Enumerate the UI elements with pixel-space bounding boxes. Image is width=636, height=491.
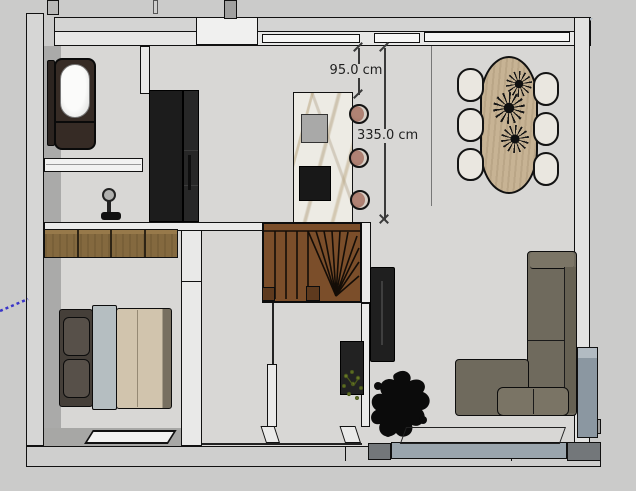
pendant-light-2[interactable] [493, 92, 525, 124]
wardrobe-divider-2 [110, 230, 112, 257]
kitchen-tall-unit-side [183, 90, 199, 222]
terrace-window-slab[interactable] [391, 442, 567, 459]
bed-sheet-fold [92, 305, 117, 410]
island-cooktop[interactable] [299, 166, 331, 201]
bathroom-counter[interactable] [44, 158, 143, 172]
kitchen-unit-seam-2 [184, 185, 198, 186]
bathtub-surround-seam [56, 121, 94, 123]
window-slit-kitchen[interactable] [262, 34, 360, 43]
bar-stool-3[interactable] [350, 190, 370, 210]
wall-stub-top-left [47, 0, 59, 15]
floorplan-viewport: 95.0 cm 335.0 cm [0, 0, 636, 491]
bathtub-side-strip [47, 60, 55, 146]
bed-pillow-2 [63, 359, 90, 398]
top-wall-white-segment [196, 17, 258, 45]
terrace-dark-segment [368, 443, 391, 460]
dim-b-label[interactable]: 335.0 cm [355, 129, 413, 143]
stair-post-left [262, 287, 275, 301]
wardrobe-divider-3 [144, 230, 146, 257]
guide-line-icon [0, 294, 30, 314]
living-rug[interactable] [400, 427, 566, 444]
kitchen-unit-handle [188, 155, 191, 190]
dining-chair-right-1[interactable] [533, 72, 559, 106]
wall-stub-line [153, 0, 158, 14]
pendant-light-3[interactable] [501, 125, 529, 153]
window-slit-dining-left[interactable] [374, 33, 420, 43]
tv-soundbar-line [381, 281, 383, 345]
understairs-wall-line [272, 303, 274, 364]
bar-stool-1[interactable] [349, 104, 369, 124]
blue-gray-cabinet[interactable] [577, 347, 598, 438]
left-wall [26, 13, 44, 446]
understairs-wall [267, 364, 277, 427]
bathroom-counter-edge-line [46, 164, 141, 165]
dim-a-label[interactable]: 95.0 cm [326, 64, 386, 78]
sofa-cushion-seam-1 [528, 340, 565, 341]
bedroom-window[interactable] [84, 430, 177, 444]
bed-duvet-seam [137, 310, 138, 407]
bed-duvet[interactable] [116, 308, 172, 409]
bathroom-right-wall [140, 46, 150, 94]
dining-chair-left-1[interactable] [457, 68, 484, 102]
wardrobe-divider-1 [77, 230, 79, 257]
kitchen-ceiling-edge-line [431, 46, 432, 206]
island-sink[interactable] [301, 114, 328, 143]
wall-stub-top-middle [224, 0, 237, 19]
dining-chair-right-3[interactable] [533, 152, 559, 186]
sofa-seat-cushion-seam [533, 389, 534, 414]
kitchen-unit-seam-1 [184, 150, 198, 151]
dining-chair-left-2[interactable] [457, 108, 484, 142]
kitchen-island[interactable] [293, 92, 353, 223]
bar-stool-2[interactable] [349, 148, 369, 168]
bed-pillow-1 [63, 317, 90, 356]
stair-post-right [306, 286, 320, 301]
faucet-base [101, 212, 121, 220]
kitchen-tall-unit-front[interactable] [149, 90, 183, 222]
terrace-corner-dark [567, 442, 601, 461]
dining-chair-right-2[interactable] [533, 112, 559, 146]
bottom-wall-seam-1 [345, 446, 346, 461]
hall-floor-edge-line [202, 443, 362, 445]
bedroom-right-wall-seam [182, 281, 201, 282]
bedroom-right-wall [181, 230, 202, 446]
dining-chair-left-3[interactable] [457, 148, 484, 181]
bathtub[interactable] [60, 64, 90, 118]
window-slit-dining-right[interactable] [424, 32, 570, 42]
